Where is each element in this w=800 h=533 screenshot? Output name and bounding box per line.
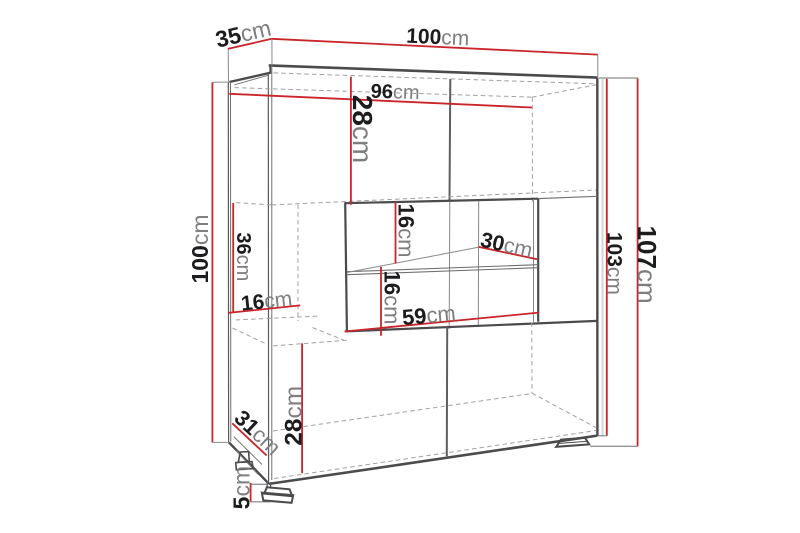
svg-text:100cm: 100cm bbox=[187, 214, 213, 283]
svg-text:16cm: 16cm bbox=[394, 204, 419, 258]
svg-text:16cm: 16cm bbox=[380, 271, 405, 325]
svg-text:28cm: 28cm bbox=[281, 386, 308, 446]
svg-text:59cm: 59cm bbox=[401, 301, 457, 331]
svg-text:28cm: 28cm bbox=[347, 95, 378, 163]
svg-text:107cm: 107cm bbox=[632, 226, 662, 304]
svg-text:103cm: 103cm bbox=[603, 232, 626, 295]
svg-text:36cm: 36cm bbox=[232, 232, 254, 281]
svg-text:5cm: 5cm bbox=[228, 466, 254, 509]
svg-text:100cm: 100cm bbox=[406, 25, 470, 51]
